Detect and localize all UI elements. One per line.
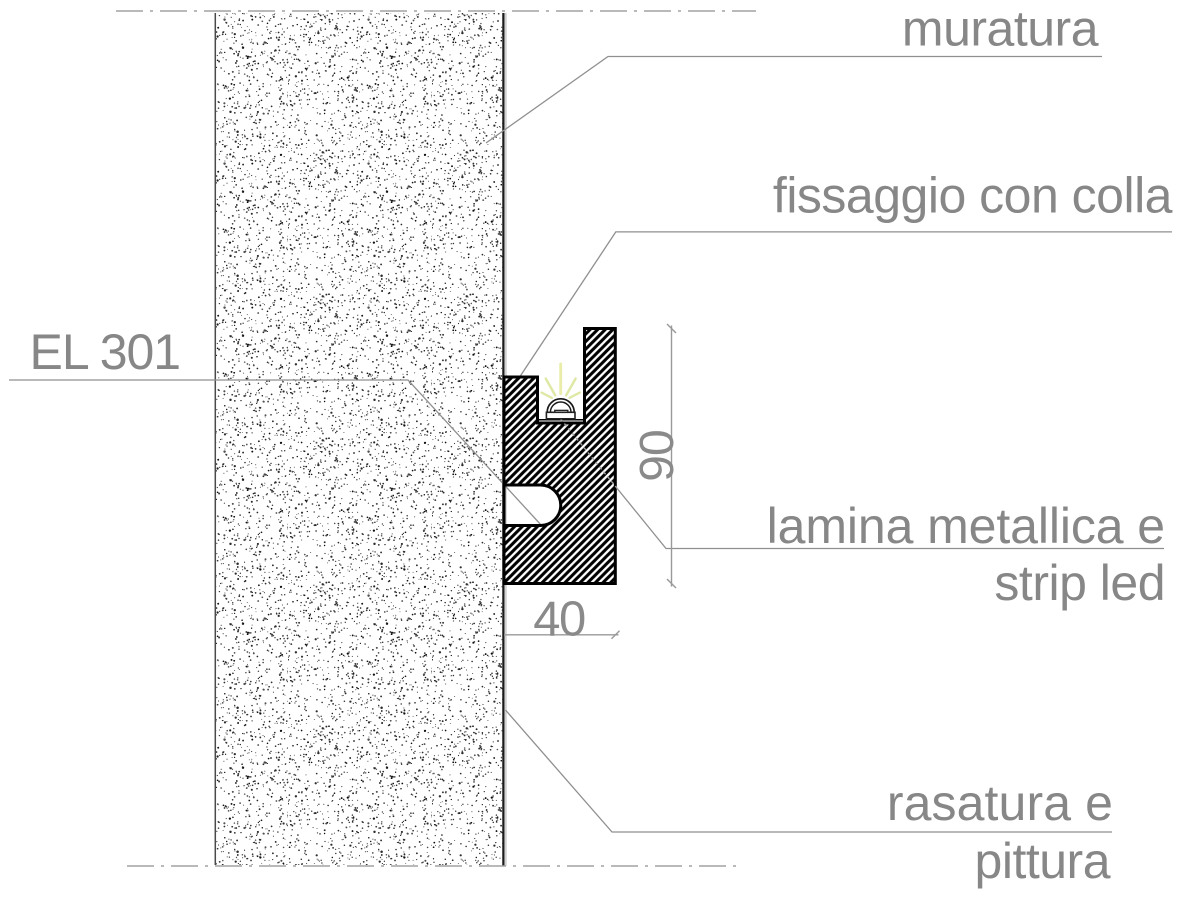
svg-text:40: 40	[533, 593, 585, 647]
svg-text:fissaggio con colla: fissaggio con colla	[773, 168, 1173, 224]
svg-text:lamina metallica e: lamina metallica e	[767, 498, 1165, 554]
svg-text:90: 90	[631, 430, 684, 481]
svg-text:rasatura e: rasatura e	[887, 775, 1113, 831]
svg-text:EL 301: EL 301	[30, 324, 181, 380]
svg-text:strip led: strip led	[994, 555, 1165, 611]
svg-text:muratura: muratura	[902, 1, 1099, 57]
svg-text:pittura: pittura	[975, 833, 1111, 889]
